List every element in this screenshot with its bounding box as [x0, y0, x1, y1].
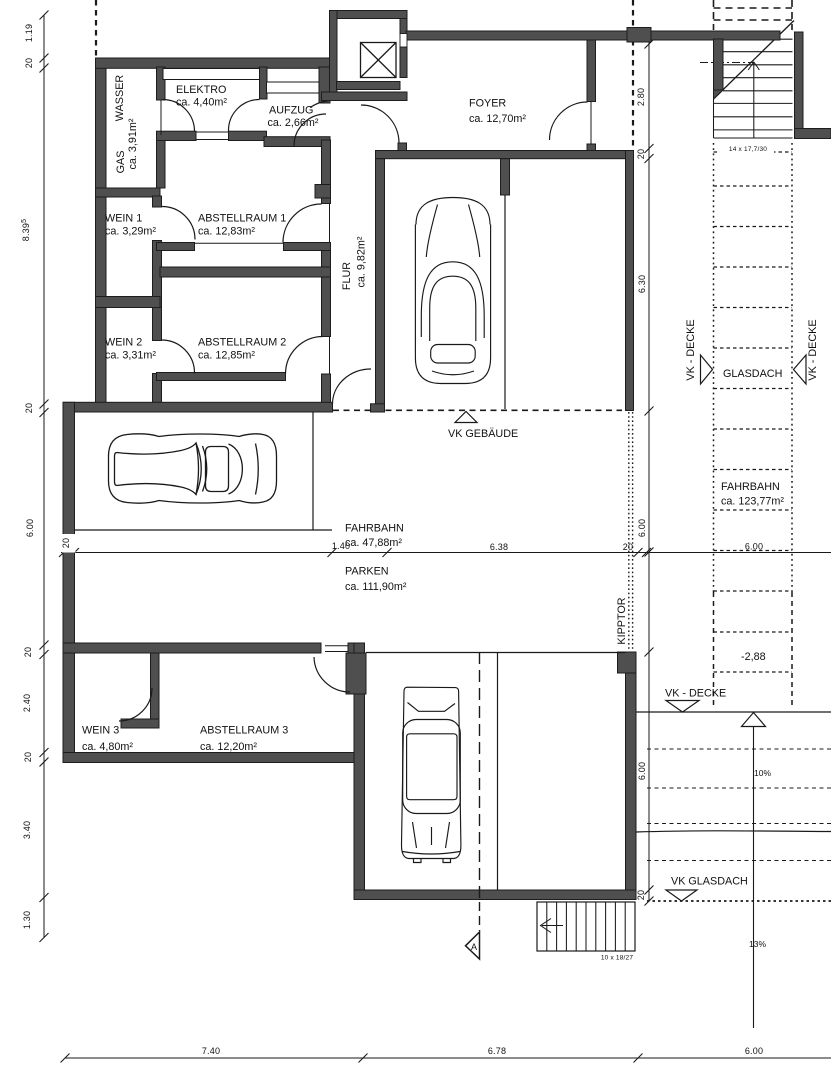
svg-text:ca. 123,77m²: ca. 123,77m²	[721, 496, 784, 508]
svg-text:AUFZUG: AUFZUG	[269, 105, 313, 117]
svg-text:6.38: 6.38	[490, 542, 508, 552]
svg-text:ABSTELLRAUM 1: ABSTELLRAUM 1	[198, 213, 286, 225]
svg-text:ca. 4,80m²: ca. 4,80m²	[82, 741, 133, 753]
svg-text:VK - DECKE: VK - DECKE	[685, 319, 697, 380]
svg-text:ELEKTRO: ELEKTRO	[176, 84, 226, 96]
svg-text:6.78: 6.78	[488, 1046, 506, 1056]
svg-text:VK - DECKE: VK - DECKE	[807, 319, 819, 380]
svg-text:-2,88: -2,88	[741, 651, 766, 663]
svg-text:20: 20	[623, 542, 633, 552]
svg-text:KIPPTOR: KIPPTOR	[616, 597, 628, 644]
svg-text:20: 20	[23, 647, 33, 657]
svg-text:20: 20	[24, 58, 34, 68]
svg-text:GLASDACH: GLASDACH	[723, 368, 782, 380]
svg-text:WEIN 3: WEIN 3	[82, 725, 119, 737]
svg-text:20: 20	[636, 149, 646, 159]
svg-text:6.00: 6.00	[637, 519, 647, 537]
svg-text:FOYER: FOYER	[469, 98, 506, 110]
svg-text:VK GLASDACH: VK GLASDACH	[671, 876, 748, 888]
svg-text:ca. 9,82m²: ca. 9,82m²	[356, 236, 368, 287]
svg-text:A: A	[471, 942, 477, 952]
svg-text:ca. 3,91m²: ca. 3,91m²	[127, 118, 139, 169]
svg-text:FAHRBAHN: FAHRBAHN	[345, 523, 404, 535]
svg-text:20: 20	[636, 890, 646, 900]
svg-text:FLUR: FLUR	[341, 262, 353, 290]
svg-text:ca. 12,20m²: ca. 12,20m²	[200, 741, 257, 753]
svg-text:6.00: 6.00	[25, 519, 35, 537]
svg-text:VK - DECKE: VK - DECKE	[665, 688, 726, 700]
svg-text:WEIN 2: WEIN 2	[105, 337, 142, 349]
svg-text:ca. 3,29m²: ca. 3,29m²	[105, 226, 156, 238]
svg-text:ca. 12,83m²: ca. 12,83m²	[198, 226, 255, 238]
svg-text:2.40: 2.40	[22, 694, 32, 712]
svg-text:1.19: 1.19	[24, 24, 34, 42]
svg-text:ca. 2,66m²: ca. 2,66m²	[268, 117, 319, 129]
svg-text:WEIN 1: WEIN 1	[105, 213, 142, 225]
svg-text:PARKEN: PARKEN	[345, 566, 389, 578]
svg-text:ABSTELLRAUM 2: ABSTELLRAUM 2	[198, 337, 286, 349]
svg-text:ca. 12,70m²: ca. 12,70m²	[469, 113, 526, 125]
svg-text:1.30: 1.30	[22, 911, 32, 929]
svg-text:20: 20	[23, 752, 33, 762]
svg-text:ca. 3,31m²: ca. 3,31m²	[105, 350, 156, 362]
svg-text:7.40: 7.40	[202, 1046, 220, 1056]
svg-text:6.00: 6.00	[745, 1046, 763, 1056]
svg-text:20: 20	[24, 403, 34, 413]
svg-text:VK GEBÄUDE: VK GEBÄUDE	[448, 428, 518, 440]
svg-text:ca. 12,85m²: ca. 12,85m²	[198, 350, 255, 362]
svg-text:10 x 18/27: 10 x 18/27	[601, 955, 634, 962]
svg-text:10%: 10%	[754, 768, 771, 778]
svg-text:FAHRBAHN: FAHRBAHN	[721, 481, 780, 493]
svg-text:13%: 13%	[749, 939, 766, 949]
svg-text:ca. 4,40m²: ca. 4,40m²	[176, 97, 227, 109]
svg-text:6.30: 6.30	[637, 275, 647, 293]
svg-text:20: 20	[61, 538, 71, 548]
svg-text:6.00: 6.00	[637, 762, 647, 780]
svg-text:3.40: 3.40	[22, 821, 32, 839]
svg-text:ABSTELLRAUM 3: ABSTELLRAUM 3	[200, 725, 288, 737]
svg-text:ca. 47,88m²: ca. 47,88m²	[345, 537, 402, 549]
svg-text:ca. 111,90m²: ca. 111,90m²	[345, 581, 407, 593]
svg-text:GAS: GAS	[115, 151, 127, 174]
svg-text:2.80: 2.80	[636, 88, 646, 106]
svg-text:14 x 17,7/30: 14 x 17,7/30	[729, 146, 767, 153]
svg-text:WASSER: WASSER	[114, 75, 126, 122]
